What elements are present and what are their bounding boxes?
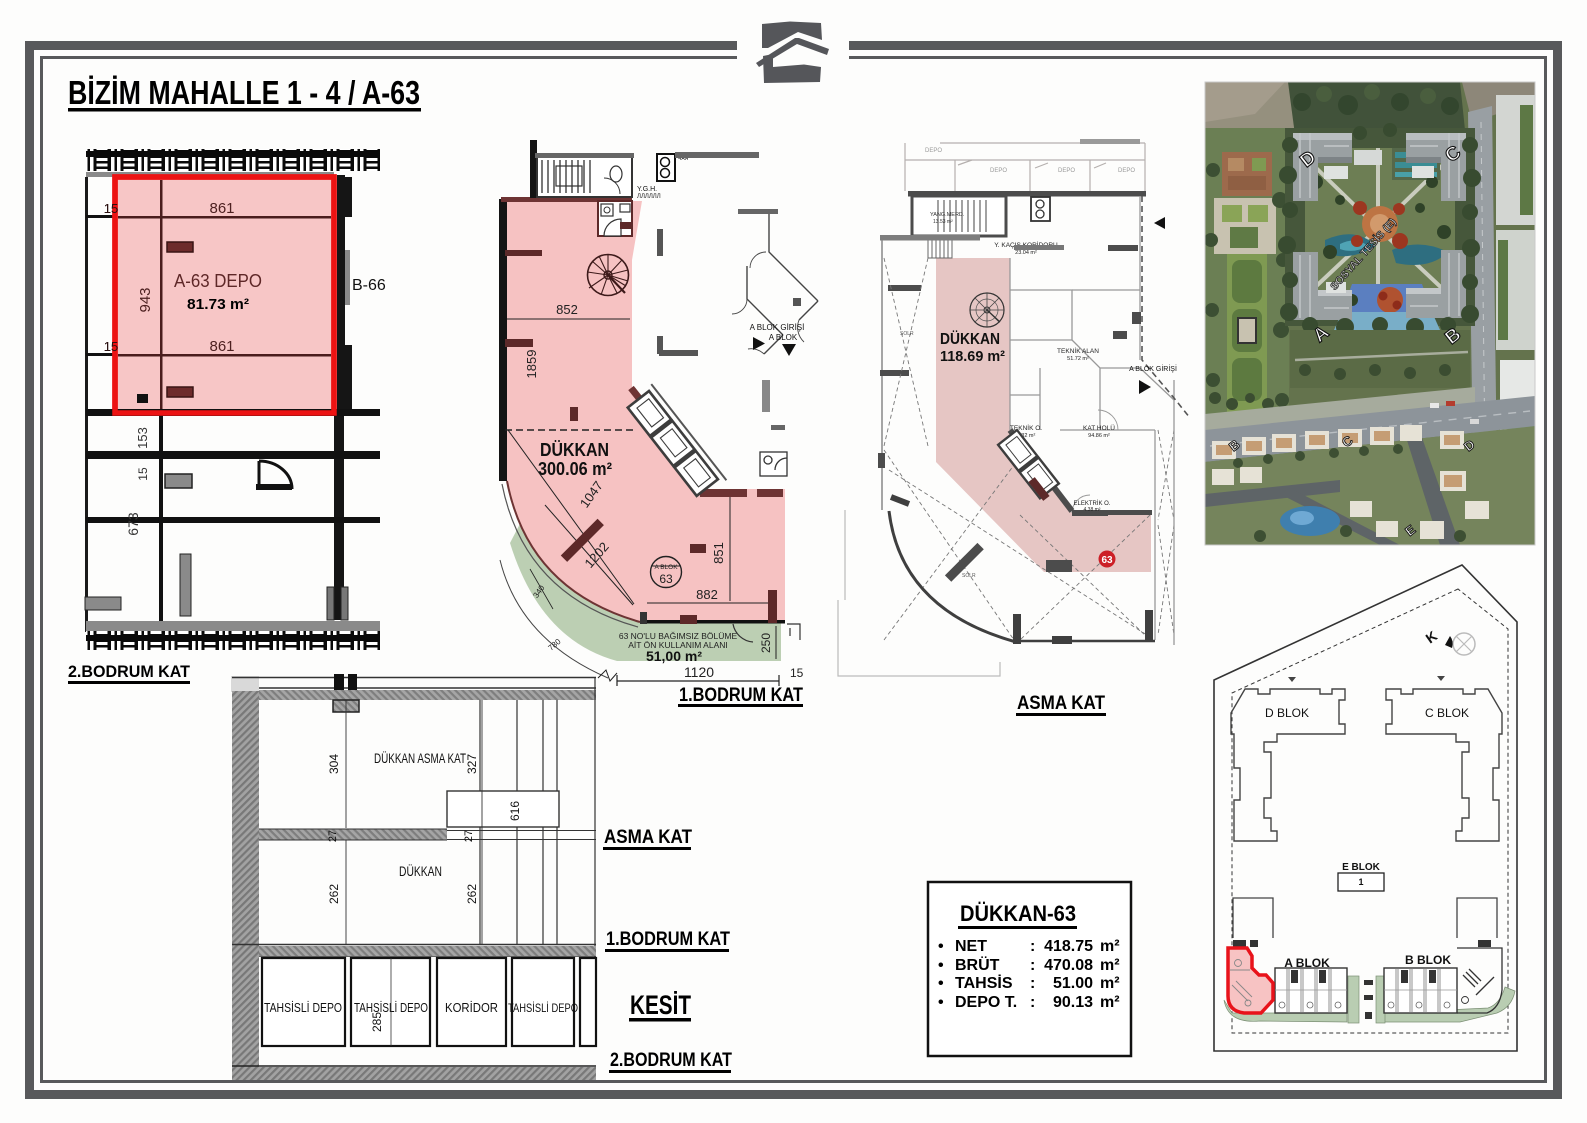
svg-text:51.72 m²: 51.72 m² [1067,356,1089,362]
svg-text:882: 882 [696,587,718,602]
svg-text:Y.G.H.: Y.G.H. [637,186,657,193]
svg-text:15: 15 [104,339,118,354]
svg-text:2.BODRUM KAT: 2.BODRUM KAT [610,1050,732,1071]
svg-text:51.00: 51.00 [1053,975,1093,992]
svg-text:63: 63 [659,572,673,586]
svg-text:SOLR: SOLR [962,573,976,579]
svg-text:A BLOK GİRİŞİ: A BLOK GİRİŞİ [1129,364,1177,373]
svg-text:81.73 m²: 81.73 m² [187,296,249,313]
svg-text:673: 673 [125,512,141,536]
svg-text:15: 15 [104,201,118,216]
svg-text:418.75: 418.75 [1044,938,1093,955]
svg-text:861: 861 [209,338,234,355]
svg-text:m²: m² [1100,975,1120,992]
svg-text:BİZİM MAHALLE 1 - 4 / A-63: BİZİM MAHALLE 1 - 4 / A-63 [68,74,420,111]
svg-text:•: • [938,938,944,955]
svg-text:13.53 m²: 13.53 m² [933,219,953,225]
svg-text:A-63 DEPO: A-63 DEPO [174,271,262,291]
svg-text:KESİT: KESİT [630,990,691,1020]
svg-text:A BLOK GİRİŞİ: A BLOK GİRİŞİ [750,323,805,332]
svg-text:C BLOK: C BLOK [1425,706,1469,720]
svg-text:•: • [938,957,944,974]
svg-text:616: 616 [508,801,522,821]
svg-text:285: 285 [370,1012,384,1032]
svg-text:E BLOK: E BLOK [1342,862,1381,873]
svg-text:KORİDOR: KORİDOR [445,1001,498,1015]
svg-text:DEPO T.: DEPO T. [955,994,1017,1011]
svg-text:23.04 m²: 23.04 m² [1015,250,1037,256]
svg-text:ASMA KAT: ASMA KAT [1017,693,1105,714]
svg-text:DEPO: DEPO [1058,168,1075,174]
svg-text:15: 15 [136,467,150,481]
svg-text:YANG.MERD.: YANG.MERD. [930,212,965,218]
svg-text:TAHSİSLİ DEPO: TAHSİSLİ DEPO [264,1001,342,1015]
svg-text:15: 15 [790,666,804,680]
svg-text:943: 943 [137,287,154,312]
svg-text:1859: 1859 [524,350,539,379]
svg-text:A BLOK: A BLOK [769,333,798,342]
svg-text:ЛЛЛЛЛЛ: ЛЛЛЛЛЛ [637,194,661,200]
svg-text:1.BODRUM KAT: 1.BODRUM KAT [606,929,730,950]
svg-text:DEPO: DEPO [990,168,1007,174]
svg-text:153: 153 [135,427,150,449]
svg-text:27: 27 [327,830,339,842]
svg-text:BRÜT: BRÜT [955,955,1000,974]
svg-text:DEPO: DEPO [1118,168,1135,174]
svg-text:1120: 1120 [684,664,714,680]
svg-text:DÜKKAN: DÜKKAN [940,329,1000,348]
svg-text::: : [1030,957,1035,974]
svg-text:DÜKKAN: DÜKKAN [540,440,609,460]
svg-text:1: 1 [1358,877,1363,887]
svg-text:A BLOK: A BLOK [654,564,678,571]
svg-text:m²: m² [1100,938,1120,955]
svg-text:KAT HOLÜ: KAT HOLÜ [1083,424,1115,432]
svg-text::: : [1030,975,1035,992]
svg-text:63: 63 [1101,555,1113,566]
svg-text:m²: m² [1100,957,1120,974]
svg-text:470.08: 470.08 [1044,957,1093,974]
svg-text:1.BODRUM KAT: 1.BODRUM KAT [679,685,803,706]
svg-text:D BLOK: D BLOK [1265,706,1309,720]
svg-text:27: 27 [463,830,475,842]
svg-text:304: 304 [327,754,341,774]
svg-text:DÜKKAN ASMA KAT: DÜKKAN ASMA KAT [374,749,466,766]
svg-text:TAHSİS: TAHSİS [955,974,1013,992]
svg-text:262: 262 [465,884,479,904]
svg-text:TEKNİK ALAN: TEKNİK ALAN [1057,346,1099,355]
svg-text:851: 851 [711,542,726,564]
svg-text:118.69 m²: 118.69 m² [940,348,1005,365]
svg-text:250: 250 [759,633,773,653]
svg-text:861: 861 [209,200,234,217]
svg-text:4.38 m²: 4.38 m² [1084,507,1101,513]
svg-text:2.BODRUM KAT: 2.BODRUM KAT [68,662,191,681]
svg-text:ASMA KAT: ASMA KAT [604,827,692,848]
svg-text:51,00 m²: 51,00 m² [646,648,702,664]
svg-text:327: 327 [465,754,479,774]
svg-text::: : [1030,938,1035,955]
svg-text:B BLOK: B BLOK [1405,953,1451,967]
svg-text:SOLR: SOLR [900,331,914,337]
svg-text:DEPO: DEPO [925,148,942,154]
svg-text:DÜKKAN: DÜKKAN [399,862,442,879]
svg-text:NET: NET [955,938,987,955]
svg-text:DÜKKAN-63: DÜKKAN-63 [960,901,1076,926]
svg-text:•: • [938,994,944,1011]
svg-text:•: • [938,975,944,992]
svg-text:m²: m² [1100,994,1120,1011]
svg-text:300.06 m²: 300.06 m² [538,459,612,479]
svg-text:852: 852 [556,302,578,317]
svg-text:ELEKTRİK O.: ELEKTRİK O. [1073,500,1110,507]
svg-text::: : [1030,994,1035,1011]
svg-text:94.86 m²: 94.86 m² [1088,433,1110,439]
svg-text:262: 262 [327,884,341,904]
svg-text:TAHSİSLİ DEPO: TAHSİSLİ DEPO [508,1001,578,1015]
svg-text:B-66: B-66 [352,277,386,294]
svg-text:90.13: 90.13 [1053,994,1093,1011]
